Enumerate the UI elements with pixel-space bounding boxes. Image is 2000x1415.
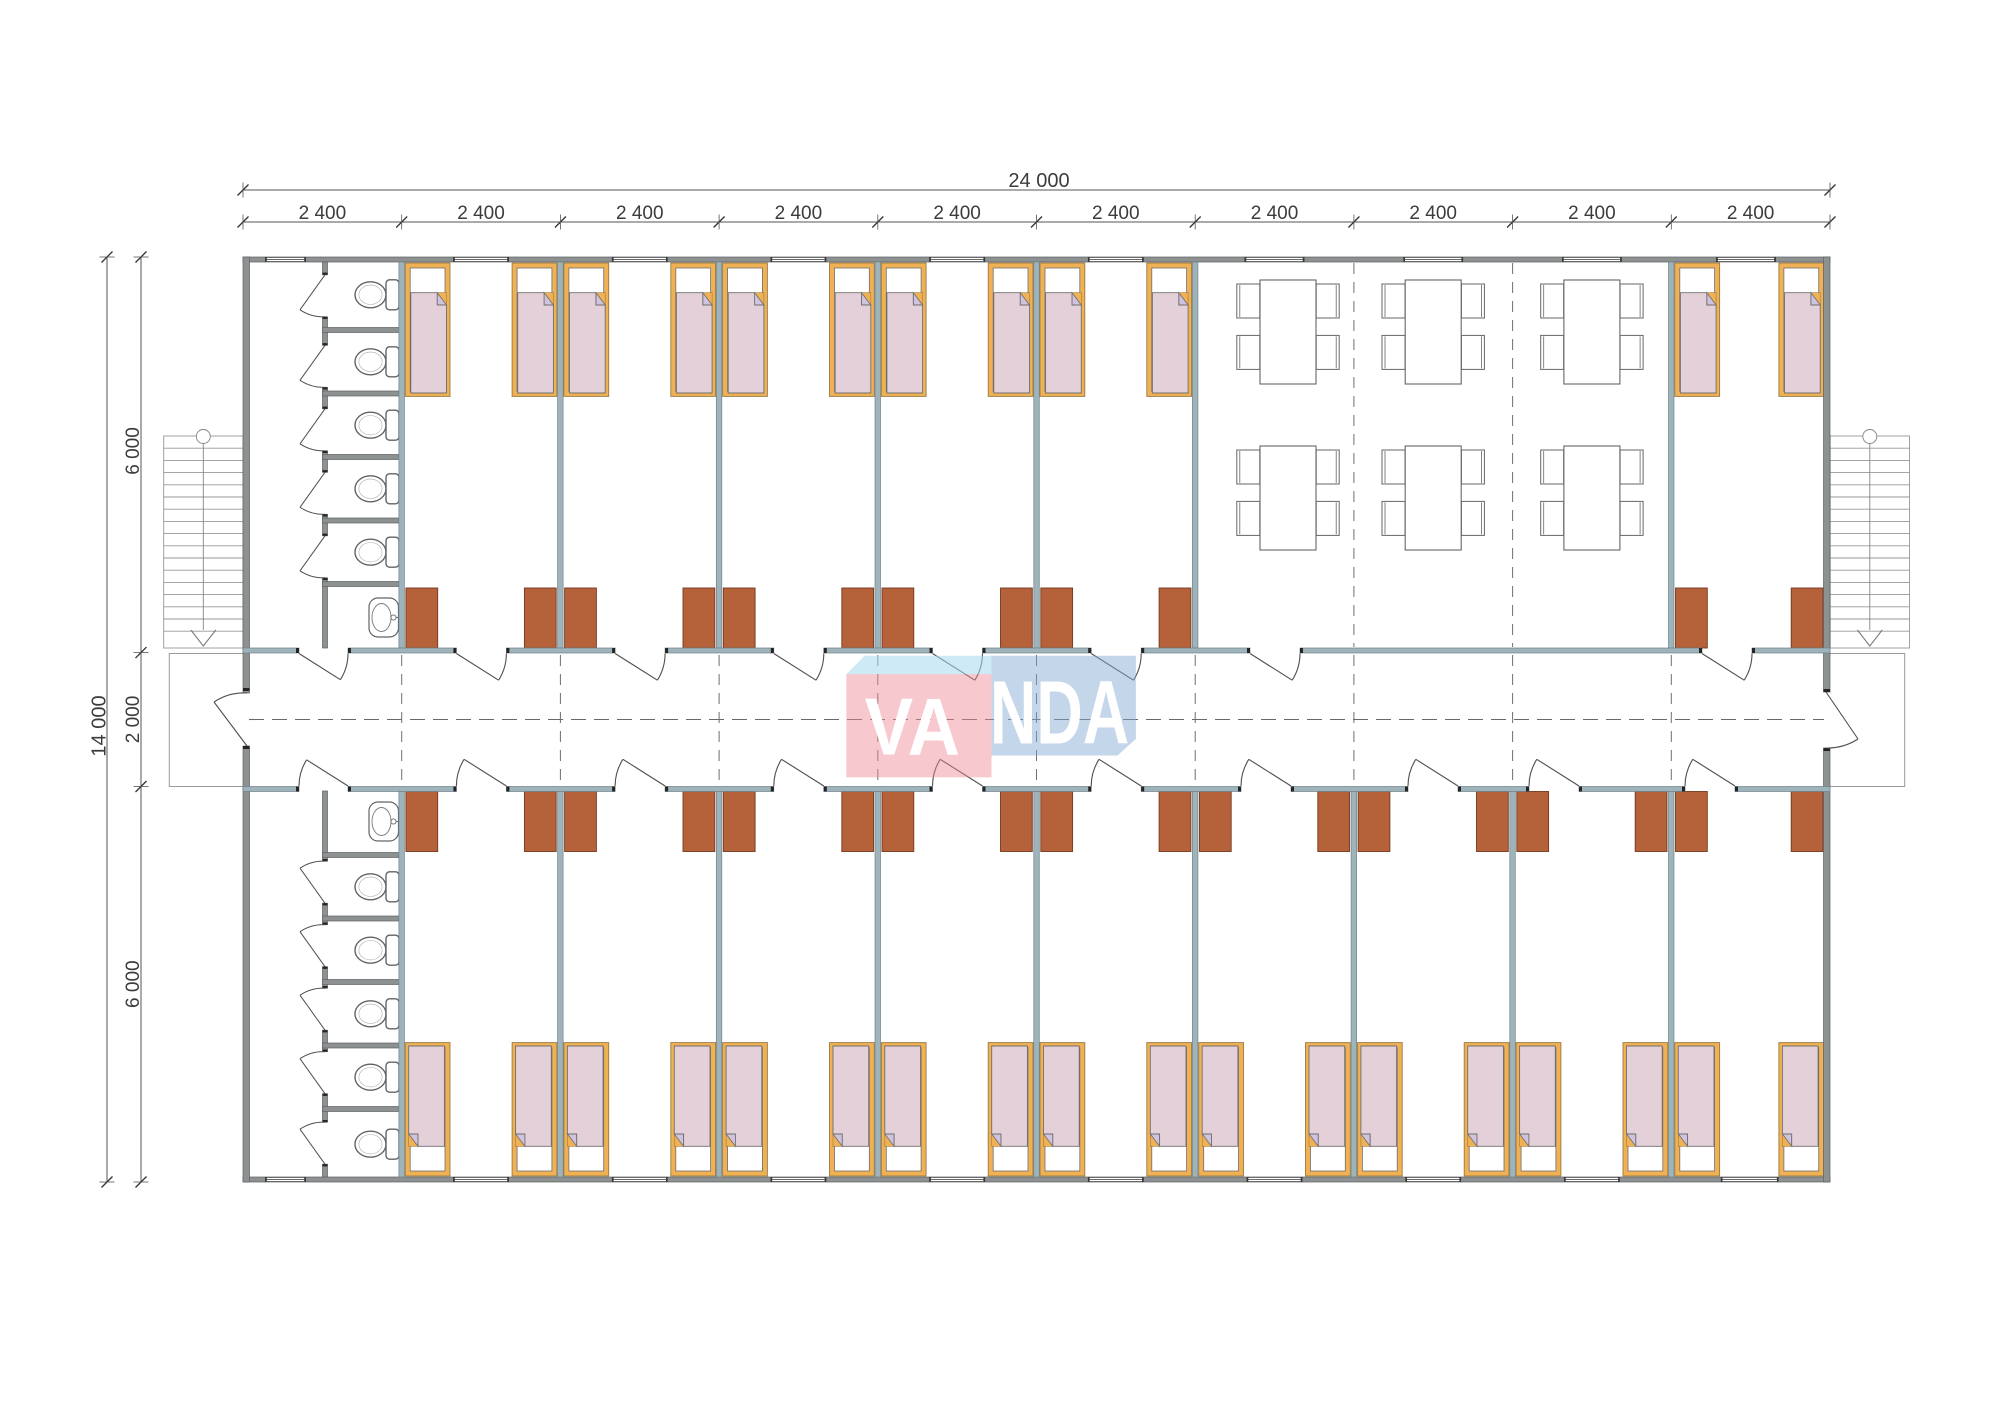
svg-text:6 000: 6 000 — [123, 960, 144, 1008]
svg-text:NDA: NDA — [990, 662, 1129, 763]
svg-text:VA: VA — [865, 683, 960, 772]
svg-text:2 400: 2 400 — [933, 203, 981, 224]
svg-text:6 000: 6 000 — [123, 427, 144, 475]
svg-text:2 000: 2 000 — [123, 696, 144, 744]
svg-text:2 400: 2 400 — [457, 203, 505, 224]
svg-text:2 400: 2 400 — [1568, 203, 1616, 224]
svg-text:2 400: 2 400 — [616, 203, 664, 224]
svg-text:2 400: 2 400 — [299, 203, 347, 224]
svg-text:2 400: 2 400 — [1409, 203, 1457, 224]
svg-text:14 000: 14 000 — [89, 695, 111, 756]
svg-text:2 400: 2 400 — [1092, 203, 1140, 224]
svg-text:2 400: 2 400 — [1251, 203, 1299, 224]
svg-text:2 400: 2 400 — [1727, 203, 1775, 224]
svg-text:24 000: 24 000 — [1008, 170, 1069, 192]
svg-text:2 400: 2 400 — [775, 203, 823, 224]
